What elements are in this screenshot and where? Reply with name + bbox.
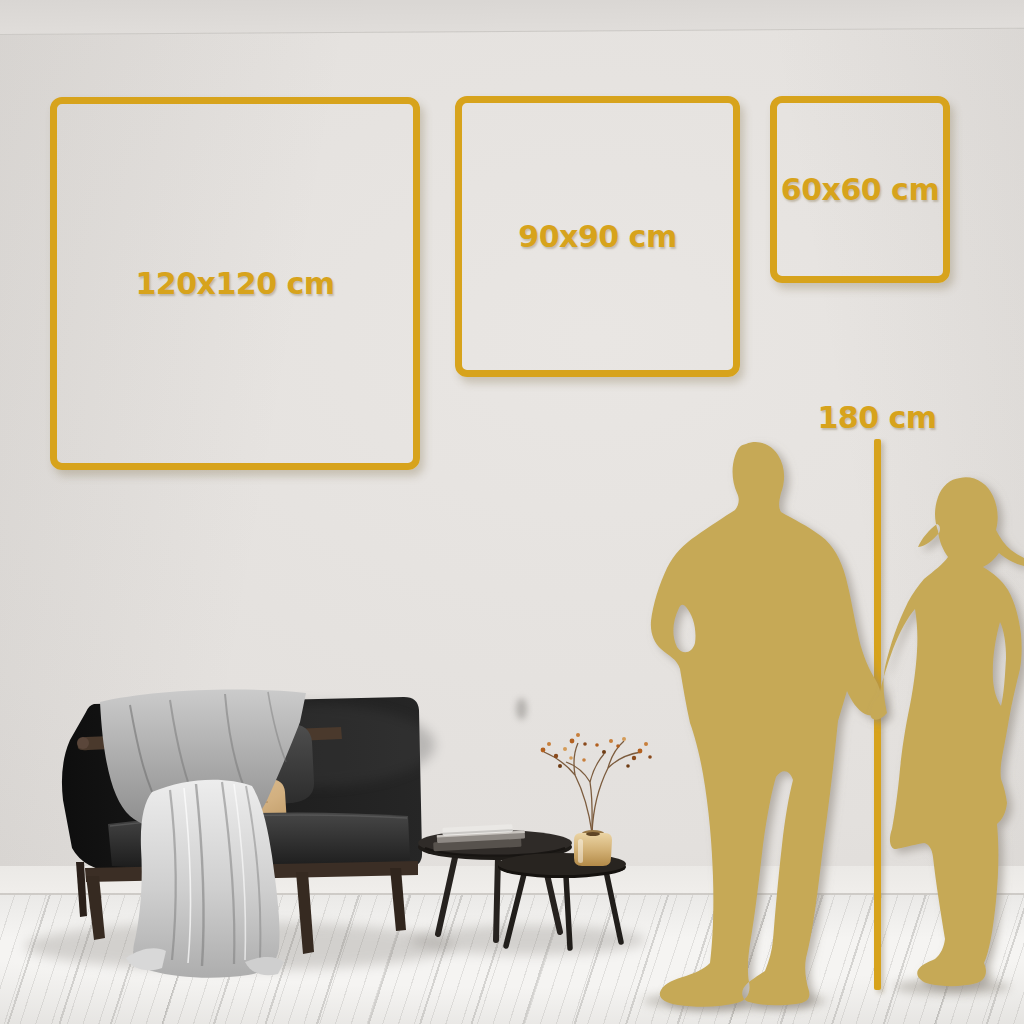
book-stack — [432, 824, 525, 852]
table-leg — [438, 853, 456, 934]
furniture-illustration — [0, 680, 680, 1024]
couple-silhouette — [600, 430, 1024, 1020]
size-label-120: 120x120 cm — [135, 266, 334, 301]
size-box-120: 120x120 cm — [50, 97, 420, 470]
size-box-60: 60x60 cm — [770, 96, 950, 283]
size-guide-scene: 120x120 cm 90x90 cm 60x60 cm 180 cm — [0, 0, 1024, 1024]
woman-silhouette — [870, 477, 1024, 986]
table-leg — [496, 857, 498, 940]
size-box-90: 90x90 cm — [455, 96, 740, 377]
sofa-leg — [390, 868, 406, 931]
size-label-60: 60x60 cm — [781, 172, 939, 207]
size-label-90: 90x90 cm — [518, 219, 676, 254]
man-silhouette — [651, 442, 881, 1007]
